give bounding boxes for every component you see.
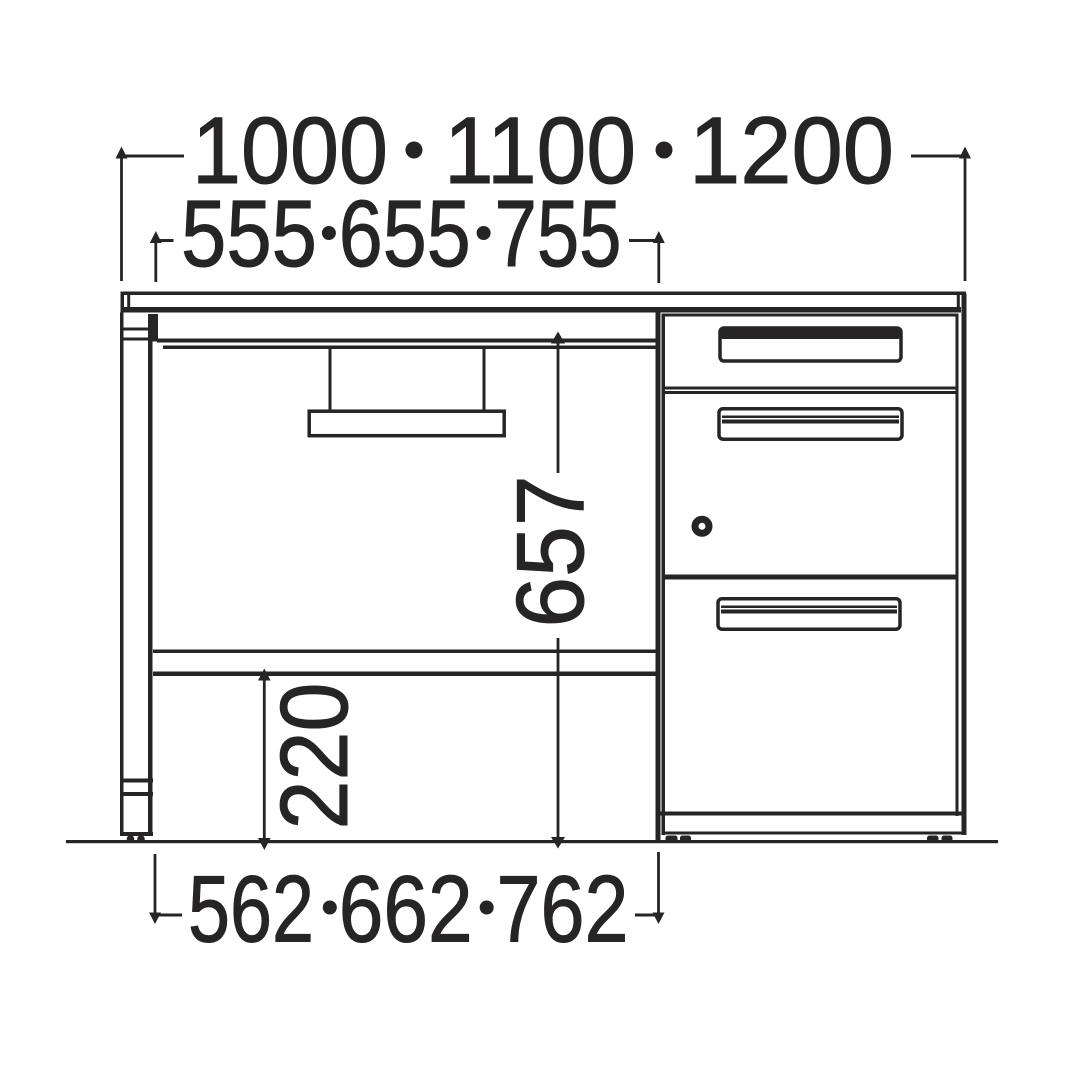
svg-text:755: 755: [495, 181, 622, 287]
svg-text:655: 655: [339, 181, 471, 287]
svg-text:1200: 1200: [689, 98, 894, 204]
svg-text:220: 220: [261, 683, 368, 830]
svg-text:762: 762: [497, 857, 629, 963]
svg-text:555: 555: [181, 181, 317, 287]
svg-text:562: 562: [188, 857, 314, 963]
svg-text:662: 662: [339, 857, 473, 963]
svg-text:657: 657: [497, 476, 604, 628]
